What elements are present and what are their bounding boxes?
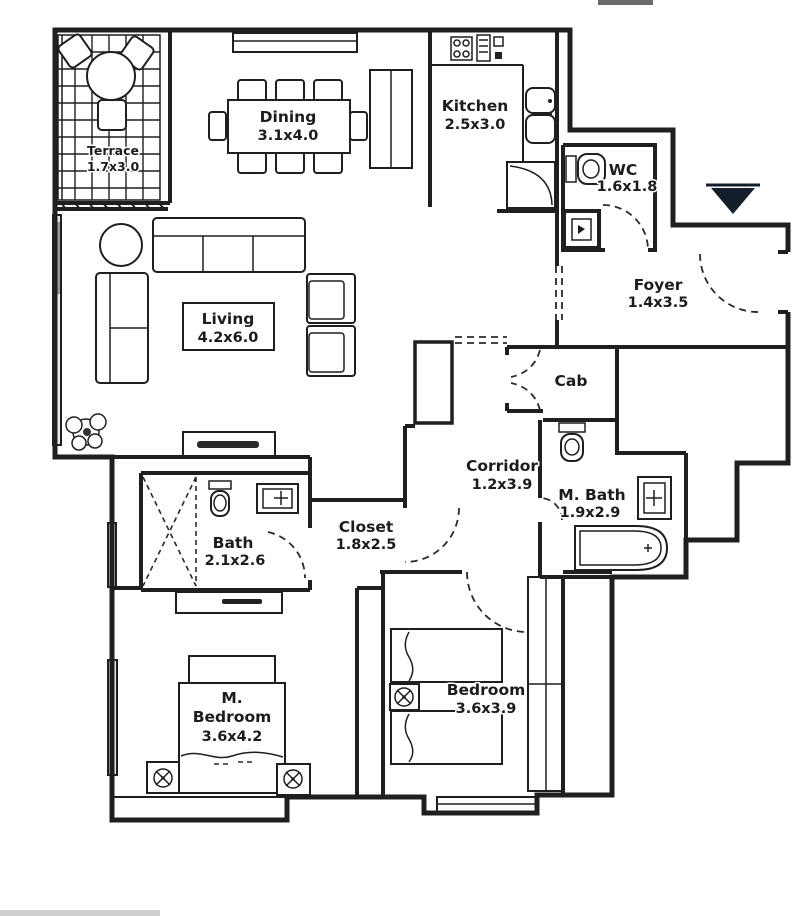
room-dims-master-bedroom: 3.6x4.2 <box>202 729 263 745</box>
dining-chair <box>209 112 226 140</box>
side-table <box>100 224 142 266</box>
bedroom-door-swing <box>467 572 527 632</box>
shower-icon <box>143 477 196 586</box>
room-dims-foyer: 1.4x3.5 <box>628 295 689 311</box>
room-label-master-bath: M. Bath <box>558 486 625 504</box>
sofa <box>153 218 305 272</box>
dining-chair <box>350 112 367 140</box>
room-label-corridor: Corridor <box>466 457 538 475</box>
dining-chair <box>238 152 266 173</box>
corridor-cab-opening <box>455 337 507 343</box>
stove-icon <box>451 35 503 61</box>
lamp-icon <box>284 770 302 788</box>
armchair-seat <box>309 333 344 372</box>
washer-icon <box>565 212 598 247</box>
room-dims-closet: 1.8x2.5 <box>336 537 397 553</box>
room-dims-terrace: 1.7x3.0 <box>87 159 140 174</box>
lamp-icon <box>395 688 413 706</box>
dining-chair <box>276 80 304 101</box>
terrace-chair <box>98 100 126 130</box>
entrance-door-swing <box>700 254 758 312</box>
room-label-terrace: Terrace <box>87 143 139 158</box>
dresser-handle <box>222 599 262 604</box>
room-dims-corridor: 1.2x3.9 <box>472 477 533 493</box>
bathtub-icon <box>575 526 667 570</box>
dining-furniture <box>209 33 412 173</box>
sink-icon <box>638 477 671 519</box>
plant-icon <box>66 414 106 450</box>
room-dims-living: 4.2x6.0 <box>198 330 259 346</box>
outer-wall <box>55 30 788 820</box>
room-dims-bedroom: 3.6x3.9 <box>456 701 517 717</box>
closet-door-swing <box>405 508 459 562</box>
toilet-icon <box>209 481 231 516</box>
cab-door-swings <box>511 350 540 410</box>
room-dims-dining: 3.1x4.0 <box>258 128 319 144</box>
wc-fixtures <box>563 154 605 248</box>
sideboard <box>233 33 357 52</box>
toilet-icon <box>559 423 585 461</box>
dining-chair <box>314 80 342 101</box>
room-label-living: Living <box>202 310 255 328</box>
bed-headboard <box>189 656 275 683</box>
wall-column <box>415 342 452 423</box>
floor-plan: Terrace 1.7x3.0 Dining 3.1x4.0 Kitchen 2… <box>0 0 800 916</box>
bath-door-swing <box>268 532 305 578</box>
armchair-seat <box>309 281 344 319</box>
room-label-foyer: Foyer <box>634 276 683 294</box>
sink-icon <box>257 484 298 513</box>
room-label-cab: Cab <box>555 372 588 390</box>
dining-chair <box>276 152 304 173</box>
room-dims-wc: 1.6x1.8 <box>597 179 658 195</box>
bath-fixtures <box>143 477 298 586</box>
lamp-icon <box>154 769 172 787</box>
floor-plan-drawing: Terrace 1.7x3.0 Dining 3.1x4.0 Kitchen 2… <box>0 0 800 916</box>
entrance-triangle-icon <box>711 188 755 214</box>
room-dims-kitchen: 2.5x3.0 <box>445 117 506 133</box>
room-label-closet: Closet <box>339 518 394 536</box>
terrace-table <box>87 52 135 100</box>
living-foyer-opening <box>556 266 562 320</box>
room-label-dining: Dining <box>260 108 317 126</box>
room-label-kitchen: Kitchen <box>442 97 509 115</box>
room-dims-bath: 2.1x2.6 <box>205 553 266 569</box>
room-label-bedroom: Bedroom <box>447 681 526 699</box>
room-label-bath: Bath <box>213 534 254 552</box>
kitchen-sink-icon <box>526 88 555 143</box>
scan-mark-bottom <box>0 910 160 916</box>
fridge-icon <box>507 162 555 208</box>
scan-mark-top <box>598 0 653 5</box>
room-dims-master-bath: 1.9x2.9 <box>560 505 621 521</box>
room-label-master-bedroom-1: M. <box>221 689 242 707</box>
room-label-master-bedroom-2: Bedroom <box>193 708 272 726</box>
dining-chair <box>314 152 342 173</box>
entrance-marker <box>706 185 760 214</box>
wc-door-swing <box>603 205 648 250</box>
room-label-wc: WC <box>609 161 637 179</box>
dining-chair <box>238 80 266 101</box>
walls <box>55 30 788 820</box>
tv-icon <box>197 441 259 448</box>
